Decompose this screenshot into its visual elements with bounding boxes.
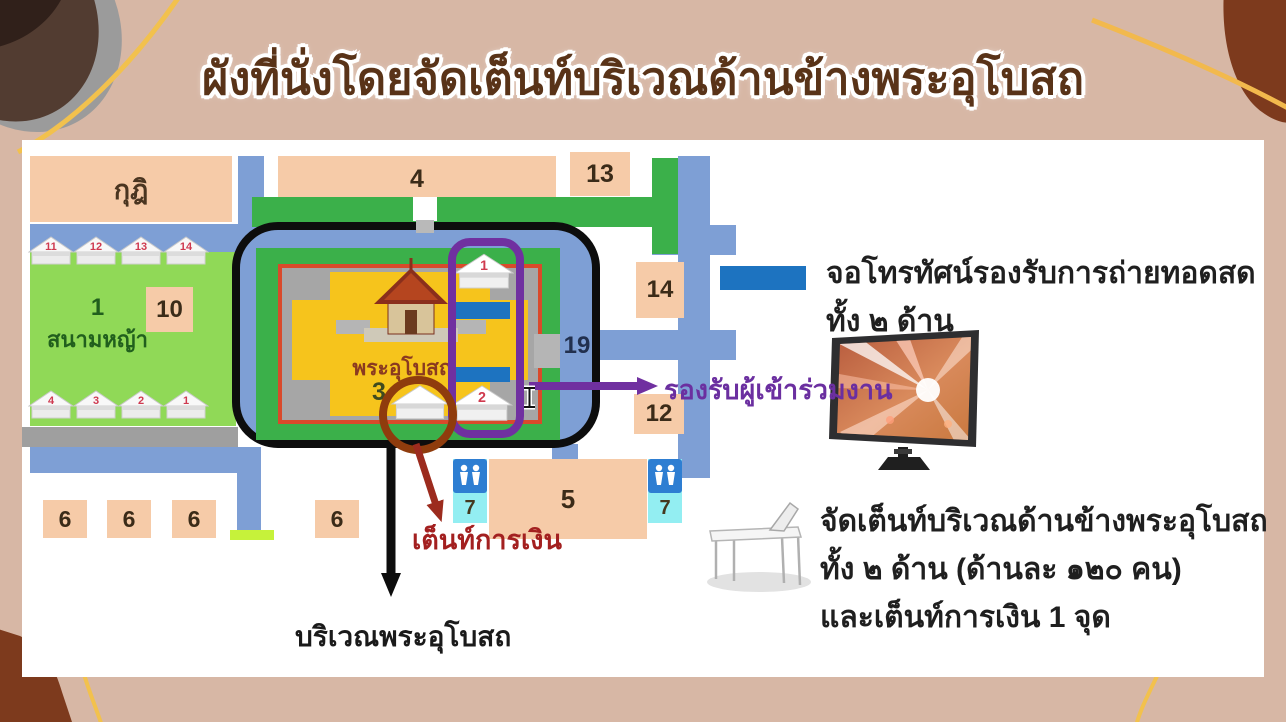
building-6-label: 6 bbox=[59, 506, 72, 533]
restroom-icon bbox=[648, 459, 682, 493]
tent-2-row: 2 bbox=[118, 390, 164, 422]
finance-tent-label: เต็นท์การเงิน bbox=[412, 518, 562, 561]
lawn-number: 1 bbox=[30, 294, 165, 322]
building-14-label: 14 bbox=[647, 276, 674, 304]
building-10-label: 10 bbox=[156, 296, 183, 324]
tent-11: 11 bbox=[28, 236, 74, 268]
attendees-label: รองรับผู้เข้าร่วมงาน bbox=[664, 368, 892, 411]
restroom-left: 7 bbox=[453, 459, 487, 523]
building-13: 13 bbox=[570, 152, 630, 196]
tent-number: 14 bbox=[180, 241, 193, 253]
tent-image bbox=[702, 495, 817, 595]
tent-number: 1 bbox=[183, 395, 189, 407]
building-6-label: 6 bbox=[123, 506, 136, 533]
page-title: ผังที่นั่งโดยจัดเต็นท์บริเวณด้านข้างพระอ… bbox=[0, 42, 1286, 114]
tent-number: 2 bbox=[138, 395, 144, 407]
tent-number: 12 bbox=[90, 241, 102, 253]
tent-14: 14 bbox=[163, 236, 209, 268]
legend-tv-swatch bbox=[720, 266, 806, 290]
road bbox=[237, 447, 261, 533]
lightgreen-bar bbox=[230, 530, 274, 540]
building-5-label: 5 bbox=[561, 484, 575, 515]
lawn-name: สนามหญ้า bbox=[30, 322, 165, 357]
spot-3-label: 3 bbox=[372, 378, 386, 407]
tent-number: 3 bbox=[93, 395, 99, 407]
building-6-label: 6 bbox=[331, 506, 344, 533]
building-6: 6 bbox=[315, 500, 359, 538]
restroom-label: 7 bbox=[659, 493, 670, 523]
building-14: 14 bbox=[636, 262, 684, 318]
building-13-label: 13 bbox=[586, 160, 614, 189]
gate bbox=[413, 197, 437, 221]
building-kuti-label: กุฎิ bbox=[114, 168, 148, 211]
gate-step bbox=[416, 220, 434, 233]
legend-tent-text-2: ทั้ง ๒ ด้าน (ด้านละ ๑๒๐ คน) bbox=[820, 546, 1182, 593]
tent-3-row: 3 bbox=[73, 390, 119, 422]
building-6: 6 bbox=[107, 500, 151, 538]
tent-12: 12 bbox=[73, 236, 119, 268]
tent-number: 13 bbox=[135, 241, 147, 253]
building-4: 4 bbox=[278, 156, 556, 202]
building-6: 6 bbox=[172, 500, 216, 538]
lawn-label: 1 สนามหญ้า bbox=[30, 294, 165, 357]
tent-number: 4 bbox=[48, 395, 55, 407]
tent-number: 11 bbox=[45, 241, 57, 253]
ubosot-area-label: บริเวณพระอุโบสถ bbox=[295, 615, 511, 659]
building-6-label: 6 bbox=[188, 506, 201, 533]
building-6: 6 bbox=[43, 500, 87, 538]
restroom-icon bbox=[453, 459, 487, 493]
road bbox=[592, 330, 736, 360]
restroom-right: 7 bbox=[648, 459, 682, 523]
building-4-label: 4 bbox=[410, 165, 424, 194]
legend-tent-text-1: จัดเต็นท์บริเวณด้านข้างพระอุโบสถ bbox=[820, 498, 1268, 545]
building-10: 10 bbox=[146, 287, 193, 332]
tent-4: 4 bbox=[28, 390, 74, 422]
tent-13: 13 bbox=[118, 236, 164, 268]
tent-1-row: 1 bbox=[163, 390, 209, 422]
side-gate bbox=[534, 334, 560, 368]
legend-tent-text-3: และเต็นท์การเงิน 1 จุด bbox=[820, 594, 1111, 641]
building-kuti: กุฎิ bbox=[30, 156, 232, 222]
legend-tv-text-1: จอโทรทัศน์รองรับการถ่ายทอดสด bbox=[826, 250, 1256, 297]
purple-highlight-box bbox=[448, 238, 524, 438]
slide: ผังที่นั่งโดยจัดเต็นท์บริเวณด้านข้างพระอ… bbox=[0, 0, 1286, 722]
finance-tent bbox=[390, 384, 450, 424]
road-19-label: 19 bbox=[560, 332, 594, 360]
road bbox=[30, 447, 238, 473]
gray-strip bbox=[22, 427, 238, 447]
